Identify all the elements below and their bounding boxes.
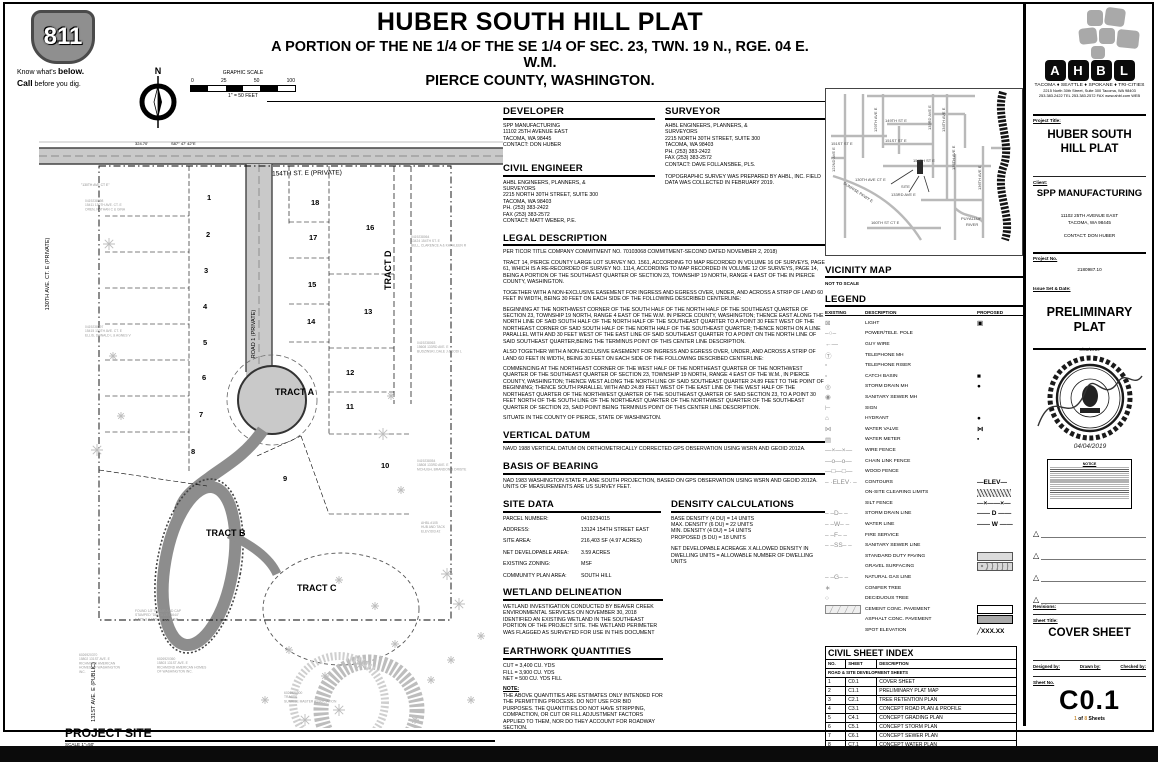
credits-row: Designed by: Drawn by: Checked by:	[1033, 664, 1146, 669]
lot-number: 2	[206, 230, 210, 239]
vicinity-street-label: 149TH ST E	[885, 118, 907, 123]
tract-label: TRACT B	[206, 528, 246, 538]
site-data-row: COMMUNITY PLAN AREA:SOUTH HILL	[503, 573, 661, 579]
sheet-title-value: COVER SHEET	[1033, 627, 1146, 641]
legend-proposed-symbol: —ELEV—	[977, 479, 1023, 486]
legend-item-label: SANITARY SEWER MH	[865, 395, 977, 400]
tree-icon	[477, 632, 485, 640]
client-label: Client:	[1033, 180, 1146, 185]
vicinity-street-label: 160TH ST CT E	[871, 220, 900, 225]
title-block-panel: AHBL TACOMA ♦ SEATTLE ♦ SPOKANE ♦ TRI-CI…	[1023, 4, 1152, 726]
legend-row: STANDARD DUTY PAVING	[825, 551, 1025, 562]
civil-engineer-header: CIVIL ENGINEER	[503, 163, 655, 177]
street-label-130th: 130TH AVE. CT. E (PRIVATE)	[45, 237, 51, 310]
client-value: SPP MANUFACTURING	[1033, 188, 1146, 199]
tree-icon	[467, 696, 475, 704]
legend-proposed-symbol: ●	[977, 415, 1023, 422]
tree-icon	[285, 646, 293, 654]
legend-row: ▫TELEPHONE RISER	[825, 360, 1025, 371]
section-surveyor: SURVEYOR AHBL ENGINEERS, PLANNERS, &SURV…	[665, 106, 825, 187]
legend-item-label: LIGHT	[865, 321, 977, 326]
legend-proposed-symbol: ⋈	[977, 425, 1023, 433]
section-vertical-datum: VERTICAL DATUM NAVD 1988 VERTICAL DATUM …	[503, 430, 825, 453]
vicinity-street-label: 135TH AVE E	[951, 145, 956, 170]
scale-tick: 25	[221, 78, 227, 84]
lot-number: 7	[199, 410, 203, 419]
tree-icon	[387, 392, 395, 400]
parcel-annotation: OREN, NATHAN C & GINA	[85, 207, 126, 211]
revision-line	[1041, 537, 1146, 538]
legend-row: – –F– –FIRE SERVICE	[825, 530, 1025, 541]
designed-by-label: Designed by:	[1033, 664, 1060, 669]
revision-line	[1041, 581, 1146, 582]
legend-item-label: CEMENT CONC. PAVEMENT	[865, 607, 977, 612]
legend-existing-symbol: Ⓣ	[825, 350, 865, 360]
revision-row: △	[1033, 516, 1146, 538]
section-wetland-delineation: WETLAND DELINEATION WETLAND INVESTIGATIO…	[503, 587, 663, 636]
sheet-index-row: 7C6.1CONCEPT SEWER PLAN	[826, 731, 1017, 740]
legend-existing-symbol: ∗	[825, 584, 865, 592]
revision-line	[1041, 559, 1146, 560]
legend-item-label: TELEPHONE MH	[865, 353, 977, 358]
sheet-index-description: CONCEPT STORM PLAN	[877, 722, 1017, 731]
legend-proposed-symbol	[977, 489, 1023, 497]
legend-row: —□—□—WOOD FENCE	[825, 466, 1025, 477]
ahbl-letter-tile: L	[1114, 60, 1135, 81]
svg-text:N: N	[155, 66, 162, 76]
project-no-value: 2180987.10	[1033, 267, 1146, 274]
lot-number: 18	[311, 198, 319, 207]
tree-icon	[377, 428, 389, 440]
vertical-datum-body: NAVD 1988 VERTICAL DATUM ON ORTHOMETRICA…	[503, 446, 825, 452]
legend-item-label: FIRE SERVICE	[865, 533, 977, 538]
tree-icon	[427, 676, 435, 684]
sheet-index-row: 6C5.1CONCEPT STORM PLAN	[826, 722, 1017, 731]
call-811-tagline: Know what's below. Call before you dig.	[17, 66, 129, 90]
legend-existing-symbol: – –W– –	[825, 521, 865, 528]
site-data-value: SOUTH HILL	[581, 573, 661, 579]
site-data-row: SITE AREA:216,403 SF (4.97 ACRES)	[503, 538, 661, 544]
graphic-scale-bar	[190, 85, 296, 92]
revision-triangle-icon: △	[1033, 552, 1039, 560]
call-811-number: 811	[44, 23, 83, 51]
lot-number: 17	[309, 233, 317, 242]
legend-row: ⓉTELEPHONE MH	[825, 350, 1025, 361]
tree-icon	[453, 598, 465, 610]
legend-row: CEMENT CONC. PAVEMENT	[825, 604, 1025, 615]
tree-icon	[261, 696, 269, 704]
street-label-131st: 131ST AVE. E (PUBLIC)	[91, 662, 97, 722]
page-count: 1 of 8 Sheets	[1033, 716, 1146, 722]
vicinity-street-label: 133RD AVE E	[927, 105, 932, 130]
legend-existing-symbol: ○	[825, 595, 865, 602]
sheet-index-sheet: C2.1	[846, 695, 877, 704]
density-line: PROPOSED (5 DU) = 18 UNITS	[671, 535, 825, 541]
sheet-index-sheet: C1.1	[846, 686, 877, 695]
graphic-scale-note: 1" = 50 FEET	[183, 93, 303, 99]
section-basis-of-bearing: BASIS OF BEARING NAD 1983 WASHINGTON STA…	[503, 461, 825, 491]
tree-icon	[299, 714, 311, 726]
lot-number: 9	[283, 474, 287, 483]
legend-existing-symbol: ⋈	[825, 425, 865, 433]
legend-item-label: STORM DRAIN MH	[865, 384, 977, 389]
site-data-label: NET DEVELOPABLE AREA:	[503, 550, 581, 556]
legend-row: – –SS– –SANITARY SEWER LINE	[825, 540, 1025, 551]
tree-icon	[371, 602, 379, 610]
issue-set-value: PRELIMINARY PLAT	[1033, 305, 1146, 335]
revision-rows: △△△△	[1033, 516, 1146, 604]
cul-de-sac	[238, 366, 306, 434]
legend-item-label: SPOT ELEVATION	[865, 628, 977, 633]
site-data-value: 0419234015	[581, 516, 661, 522]
vicinity-street-label: SITE	[901, 184, 910, 189]
legend-item-label: POWER/TELE. POLE	[865, 331, 977, 336]
sheet-number: C0.1	[1033, 685, 1146, 716]
bearing-label: S87° 47' 42"E	[171, 141, 196, 146]
legend-existing-symbol: ▫	[825, 373, 865, 380]
section-earthwork-quantities: EARTHWORK QUANTITIES CUT = 3,400 CU. YDS…	[503, 646, 663, 731]
sheet-index-sheet: C0.1	[846, 677, 877, 686]
vicinity-street-label: 133RD AVE E	[891, 192, 916, 197]
developer-header: DEVELOPER	[503, 106, 655, 120]
sheet-index-no: 3	[826, 695, 846, 704]
legend-existing-symbol: —□—□—	[825, 468, 865, 475]
lot-number: 5	[203, 338, 207, 347]
site-data-label: SITE AREA:	[503, 538, 581, 544]
sheet-index-description: COVER SHEET	[877, 677, 1017, 686]
revision-triangle-icon: △	[1033, 574, 1039, 582]
civil-engineer-line: CONTACT: MATT WEBER, P.E.	[503, 218, 655, 224]
civil-sheet-index: CIVIL SHEET INDEX NO.SHEETDESCRIPTION RO…	[825, 646, 1017, 750]
legend-column-headers: EXISTING DESCRIPTION PROPOSED	[825, 310, 1025, 316]
sheet-index-description: CONCEPT SEWER PLAN	[877, 731, 1017, 740]
legend-row: SILT FENCE—×——×—	[825, 498, 1025, 509]
legend-row: ⊠LIGHT▣	[825, 318, 1025, 329]
project-title-label: Project Title:	[1033, 118, 1146, 123]
site-plan: 123456789101112131415161718 TRACT ATRACT…	[39, 104, 503, 728]
project-no-label: Project No.	[1033, 256, 1146, 261]
legend-row: ▫CATCH BASIN■	[825, 371, 1025, 382]
legend-row: —×—×—WIRE FENCE	[825, 445, 1025, 456]
legend-proposed-symbol: —×——×—	[977, 500, 1023, 507]
basis-of-bearing-body: NAD 1983 WASHINGTON STATE PLANE SOUTH PR…	[503, 478, 825, 491]
vicinity-street-label: 151ST ST E	[831, 141, 853, 146]
legend: LEGEND EXISTING DESCRIPTION PROPOSED ⊠LI…	[825, 294, 1025, 636]
wetland-header: WETLAND DELINEATION	[503, 587, 663, 601]
legend-item-label: DECIDUOUS TREE	[865, 596, 977, 601]
ahbl-letter-tile: B	[1091, 60, 1112, 81]
site-data-header: SITE DATA	[503, 499, 661, 513]
sheet-index-no: 7	[826, 731, 846, 740]
vicinity-map-title: VICINITY MAP	[825, 265, 1025, 278]
legal-paragraph: SITUATE IN THE COUNTY OF PIERCE, STATE O…	[503, 415, 825, 421]
legend-row: – –G– –NATURAL GAS LINE	[825, 572, 1025, 583]
earthwork-note: THE ABOVE QUANTITIES ARE ESTIMATES ONLY …	[503, 693, 663, 732]
legend-item-label: WATER VALVE	[865, 427, 977, 432]
sheet-index-sheet: C6.1	[846, 731, 877, 740]
legend-item-label: SANITARY SEWER LINE	[865, 543, 977, 548]
density-note: NET DEVELOPABLE ACREAGE X ALLOWED DENSIT…	[671, 546, 825, 565]
sheet-index-no: 5	[826, 713, 846, 722]
stamp-date: 04/04/2019	[1073, 443, 1106, 450]
legend-existing-symbol: —o—o—	[825, 458, 865, 465]
tree-icon	[355, 658, 367, 670]
legend-item-label: GRAVEL SURFACING	[865, 564, 977, 569]
sheet-index-column-header: SHEET	[846, 659, 877, 668]
density-calculations-header: DENSITY CALCULATIONS	[671, 499, 825, 513]
section-site-data: SITE DATA PARCEL NUMBER:0419234015ADDRES…	[503, 499, 661, 580]
section-developer: DEVELOPER SPP MANUFACTURING11102 25TH AV…	[503, 106, 655, 149]
tract-b-loop	[152, 481, 247, 650]
graphic-scale-ticks: 02550100	[191, 78, 295, 84]
parcel-annotation: INC.	[79, 670, 86, 674]
legend-existing-symbol: ⊢	[825, 404, 865, 412]
street-label-road1: ROAD 1 (PRIVATE)	[251, 310, 257, 359]
section-civil-engineer: CIVIL ENGINEER AHBL ENGINEERS, PLANNERS,…	[503, 163, 655, 225]
wetland-boundary	[263, 553, 419, 665]
page-subtitle-1: A PORTION OF THE NE 1/4 OF THE SE 1/4 OF…	[255, 39, 825, 71]
tree-icon	[397, 486, 405, 494]
developer-line: CONTACT: DON HUBER	[503, 142, 655, 148]
legend-item-label: WATER LINE	[865, 522, 977, 527]
legend-item-label: CATCH BASIN	[865, 374, 977, 379]
site-data-value: MSF	[581, 561, 661, 567]
legal-paragraph: BEGINNING AT THE NORTHWEST CORNER OF THE…	[503, 307, 825, 346]
project-title-value: HUBER SOUTH HILL PLAT	[1033, 129, 1146, 157]
sheet-index-sheet: C4.1	[846, 713, 877, 722]
legend-existing-symbol: ▤	[825, 436, 865, 444]
section-legal-description: LEGAL DESCRIPTION PER TICOR TITLE COMPAN…	[503, 233, 825, 422]
legend-item-label: CONIFER TREE	[865, 586, 977, 591]
legend-row: ⌂HYDRANT●	[825, 413, 1025, 424]
distance-label: 324.70'	[135, 141, 148, 146]
page-subtitle-2: PIERCE COUNTY, WASHINGTON.	[255, 73, 825, 89]
legend-row: –○–POWER/TELE. POLE	[825, 329, 1025, 340]
legend-existing-symbol: – –G– –	[825, 574, 865, 581]
vicinity-street-label: 151ST ST E	[885, 138, 907, 143]
legend-proposed-symbol: —— W ——	[977, 521, 1023, 528]
lot-number: 10	[381, 461, 389, 470]
legend-existing-symbol: –○–	[825, 330, 865, 337]
graphic-scale-title: GRAPHIC SCALE	[183, 70, 303, 76]
leaf-icon	[1033, 8, 1146, 60]
legend-item-label: WIRE FENCE	[865, 448, 977, 453]
site-data-value: 3.59 ACRES	[581, 550, 661, 556]
legend-proposed-symbol	[977, 552, 1023, 561]
vicinity-map: 151ST ST E129TH AVE E149TH ST E133RD AVE…	[825, 88, 1023, 256]
revisions-label: Revisions:	[1033, 604, 1146, 609]
lot-number: 4	[203, 302, 208, 311]
sheet-index-sheet: C5.1	[846, 722, 877, 731]
legend-proposed-symbol: —— D ——	[977, 510, 1023, 517]
revision-triangle-icon: △	[1033, 530, 1039, 538]
legend-item-label: STORM DRAIN LINE	[865, 511, 977, 516]
tree-icon	[411, 716, 419, 724]
legend-existing-symbol: ◉	[825, 393, 865, 401]
section-density-calculations: DENSITY CALCULATIONS BASE DENSITY (4 DU)…	[671, 499, 825, 566]
legend-proposed-symbol: ●	[977, 383, 1023, 390]
tree-icon	[333, 704, 345, 716]
site-data-row: PARCEL NUMBER:0419234015	[503, 516, 661, 522]
vicinity-street-label: 130TH AVE CT E	[855, 177, 886, 182]
sheet-index-description: CONCEPT ROAD PLAN & PROFILE	[877, 704, 1017, 713]
lot-number: 3	[204, 266, 208, 275]
sheet-bottom-band	[0, 746, 1158, 762]
ahbl-address: 2215 North 30th Street, Suite 300 Tacoma…	[1033, 88, 1146, 98]
sheet-index-description: TREE RETENTION PLAN	[877, 695, 1017, 704]
legend-existing-symbol: ←—	[825, 341, 865, 348]
lot-number: 13	[364, 307, 372, 316]
parcel-annotation: ELEV:603.42	[421, 529, 440, 533]
notice-box: NOTICE	[1047, 459, 1132, 509]
legal-paragraph: ALSO TOGETHER WITH A NON-EXCLUSIVE EASEM…	[503, 349, 825, 362]
street-label-154th: 154TH ST. E (PRIVATE)	[272, 169, 342, 177]
legend-proposed-symbol: ╱XXX.XX	[977, 627, 1023, 635]
parcel-annotation: OF WASHINGTON INC.	[157, 670, 193, 674]
legend-proposed-symbol	[977, 615, 1023, 624]
legend-existing-symbol: ▫	[825, 362, 865, 369]
ahbl-logo: AHBL TACOMA ♦ SEATTLE ♦ SPOKANE ♦ TRI-CI…	[1033, 8, 1146, 98]
call-811-logo: 811 Know what's below. Call before you d…	[17, 10, 129, 90]
plan-sheet: HUBER SOUTH HILL PLAT A PORTION OF THE N…	[3, 2, 1154, 732]
legend-proposed-symbol	[977, 562, 1023, 571]
revision-triangle-icon: △	[1033, 596, 1039, 604]
site-data-row: ADDRESS:13124 154TH STREET EAST	[503, 527, 661, 533]
legend-row: ⊢SIGN	[825, 403, 1025, 414]
legend-existing-symbol: – –SS– –	[825, 542, 865, 549]
legend-row: ASPHALT CONC. PAVEMENT	[825, 615, 1025, 626]
legend-item-label: SIGN	[865, 406, 977, 411]
lot-number: 12	[346, 368, 354, 377]
tract-label: TRACT D	[383, 250, 393, 290]
legend-row: ○DECIDUOUS TREE	[825, 593, 1025, 604]
site-data-label: COMMUNITY PLAN AREA:	[503, 573, 581, 579]
tree-icon	[117, 412, 125, 420]
sheet-index-description: CONCEPT GRADING PLAN	[877, 713, 1017, 722]
legend-title: LEGEND	[825, 294, 1025, 307]
surveyor-line: CONTACT: DAVE FOLLANSBEE, PLS.	[665, 162, 825, 168]
page-title: HUBER SOUTH HILL PLAT	[255, 8, 825, 37]
parcel-annotation: ELLIS, DONALD L & AGNES V	[85, 333, 131, 337]
lot-number: 6	[202, 373, 206, 382]
sheet-index-description: PRELIMINARY PLAT MAP	[877, 686, 1017, 695]
vicinity-street-label: 129TH AVE E	[873, 107, 878, 132]
issue-set-label: Issue Set & Date:	[1033, 286, 1146, 291]
scale-tick: 0	[191, 78, 194, 84]
sheet-index-no: 1	[826, 677, 846, 686]
tree-icon	[91, 444, 103, 456]
ahbl-letter-tile: H	[1068, 60, 1089, 81]
vicinity-street-label: 134TH AVE E	[941, 107, 946, 132]
revision-row: △	[1033, 538, 1146, 560]
engineer-stamp: 04/04/2019 NOTICE	[1033, 352, 1146, 509]
checked-by-label: Checked by:	[1120, 664, 1146, 669]
site-data-label: EXISTING ZONING:	[503, 561, 581, 567]
revision-row: △	[1033, 560, 1146, 582]
scale-tick: 50	[254, 78, 260, 84]
legend-item-label: STANDARD DUTY PAVING	[865, 554, 977, 559]
surveyor-note: TOPOGRAPHIC SURVEY WAS PREPARED BY AHBL,…	[665, 174, 825, 187]
legend-item-label: NATURAL GAS LINE	[865, 575, 977, 580]
sheet-index-row: 3C2.1TREE RETENTION PLAN	[826, 695, 1017, 704]
title-banner: HUBER SOUTH HILL PLAT A PORTION OF THE N…	[255, 8, 825, 89]
parcel-annotation: MCHUGH, BRANDON & DRISTE	[417, 467, 467, 471]
legend-item-label: SILT FENCE	[865, 501, 977, 506]
vicinity-street-label: RIVER	[966, 222, 978, 227]
graphic-scale: GRAPHIC SCALE 02550100 1" = 50 FEET	[183, 70, 303, 99]
legend-existing-symbol	[825, 605, 865, 614]
site-data-value: 216,403 SF (4.97 ACRES)	[581, 538, 661, 544]
legend-row: GRAVEL SURFACING	[825, 562, 1025, 573]
lot-number: 1	[207, 193, 211, 202]
legend-row: ON-SITE CLEARING LIMITS	[825, 488, 1025, 499]
legend-proposed-symbol: ■	[977, 373, 1023, 380]
vicinity-street-label: 122ND AVE E	[831, 147, 836, 172]
legal-description-header: LEGAL DESCRIPTION	[503, 233, 825, 247]
legend-item-label: WOOD FENCE	[865, 469, 977, 474]
tree-icon	[321, 672, 329, 680]
lot-number: 14	[307, 317, 316, 326]
legend-item-label: GUY WIRE	[865, 342, 977, 347]
legend-item-label: TELEPHONE RISER	[865, 363, 977, 368]
legend-item-label: WATER METER	[865, 437, 977, 442]
tree-icon	[103, 238, 115, 250]
legend-row: SPOT ELEVATION╱XXX.XX	[825, 625, 1025, 636]
legend-item-label: ON-SITE CLEARING LIMITS	[865, 490, 977, 495]
legal-paragraph: PER TICOR TITLE COMPANY COMMITMENT NO. 7…	[503, 249, 825, 255]
wetland-body: WETLAND INVESTIGATION CONDUCTED BY BEAVE…	[503, 604, 663, 636]
legend-row: ▤WATER METER▪	[825, 435, 1025, 446]
lot-number: 15	[308, 280, 316, 289]
sheet-index-column-header: NO.	[826, 659, 846, 668]
tree-icon	[441, 568, 453, 580]
shovel-shield-icon: 811	[31, 10, 95, 64]
sheet-index-row: 2C1.1PRELIMINARY PLAT MAP	[826, 686, 1017, 695]
tree-icon	[391, 640, 399, 648]
legend-item-label: CONTOURS	[865, 480, 977, 485]
sheet-index-row: 5C4.1CONCEPT GRADING PLAN	[826, 713, 1017, 722]
revision-row: △	[1033, 582, 1146, 604]
lot-number: 11	[346, 402, 354, 411]
sheet-index-row: 4C3.1CONCEPT ROAD PLAN & PROFILE	[826, 704, 1017, 713]
site-data-row: NET DEVELOPABLE AREA:3.59 ACRES	[503, 550, 661, 556]
legend-proposed-symbol: ▪	[977, 436, 1023, 443]
sheet-index-row: 1C0.1COVER SHEET	[826, 677, 1017, 686]
tree-icon	[447, 656, 455, 664]
notes-column: DEVELOPER SPP MANUFACTURING11102 25TH AV…	[503, 106, 825, 732]
legend-existing-symbol: – –D– –	[825, 510, 865, 517]
legal-paragraph: TOGETHER WITH A NON-EXCLUSIVE EASEMENT F…	[503, 290, 825, 303]
sheet-index-group: ROAD & SITE DEVELOPMENT SHEETS	[826, 668, 1017, 677]
legend-existing-symbol: ◎	[825, 383, 865, 391]
sheet-index-no: 6	[826, 722, 846, 731]
earthwork-header: EARTHWORK QUANTITIES	[503, 646, 663, 660]
reference-column: 151ST ST E129TH AVE E149TH ST E133RD AVE…	[825, 88, 1025, 750]
parcel-annotation: BUDZINSKI, DALE J & JODI L	[417, 349, 462, 353]
legend-existing-symbol: ⌂	[825, 415, 865, 422]
legend-row: ⋈WATER VALVE⋈	[825, 424, 1025, 435]
legend-existing-symbol: ⊠	[825, 319, 865, 327]
legend-proposed-symbol	[977, 605, 1023, 614]
sheet-index-no: 2	[826, 686, 846, 695]
legend-existing-symbol: – –F– –	[825, 532, 865, 539]
project-site-footer: PROJECT SITE SCALE 1"=50'	[65, 726, 495, 748]
legend-item-label: CHAIN LINK FENCE	[865, 459, 977, 464]
legal-paragraph: TRACT 14, PIERCE COUNTY LARGE LOT SURVEY…	[503, 260, 825, 286]
surveyor-header: SURVEYOR	[665, 106, 825, 120]
site-data-label: ADDRESS:	[503, 527, 581, 533]
tree-icon	[109, 352, 117, 360]
